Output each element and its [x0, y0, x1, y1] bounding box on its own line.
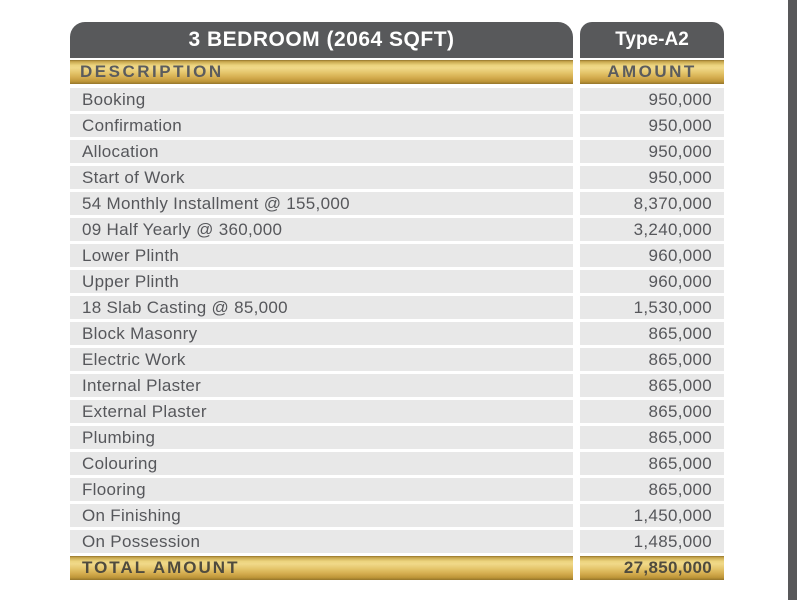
row-amount: 950,000: [580, 166, 724, 189]
column-gap: [573, 556, 580, 580]
row-description: Upper Plinth: [70, 270, 573, 293]
row-description: 54 Monthly Installment @ 155,000: [70, 192, 573, 215]
column-gap: [573, 192, 580, 215]
row-amount: 950,000: [580, 114, 724, 137]
table-row: Upper Plinth 960,000: [70, 270, 724, 293]
page-edge-strip: [788, 0, 797, 600]
row-description: Lower Plinth: [70, 244, 573, 267]
row-amount: 865,000: [580, 452, 724, 475]
column-gap: [573, 218, 580, 241]
row-description: 18 Slab Casting @ 85,000: [70, 296, 573, 319]
table-row: On Finishing 1,450,000: [70, 504, 724, 527]
total-amount: 27,850,000: [580, 556, 724, 580]
row-description: Internal Plaster: [70, 374, 573, 397]
column-gap: [573, 478, 580, 501]
row-amount: 865,000: [580, 374, 724, 397]
table-row: Flooring 865,000: [70, 478, 724, 501]
row-description: Block Masonry: [70, 322, 573, 345]
row-amount: 1,485,000: [580, 530, 724, 553]
row-amount: 960,000: [580, 270, 724, 293]
row-amount: 960,000: [580, 244, 724, 267]
table-row: 18 Slab Casting @ 85,000 1,530,000: [70, 296, 724, 319]
row-description: On Finishing: [70, 504, 573, 527]
row-amount: 1,530,000: [580, 296, 724, 319]
row-description: External Plaster: [70, 400, 573, 423]
row-description: Start of Work: [70, 166, 573, 189]
column-gap: [573, 374, 580, 397]
row-description: Booking: [70, 88, 573, 111]
row-description: Electric Work: [70, 348, 573, 371]
row-amount: 865,000: [580, 426, 724, 449]
column-gap: [573, 530, 580, 553]
row-description: Confirmation: [70, 114, 573, 137]
table-body: Booking 950,000 Confirmation 950,000 All…: [70, 88, 724, 553]
row-description: 09 Half Yearly @ 360,000: [70, 218, 573, 241]
column-gap: [573, 322, 580, 345]
total-row: TOTAL AMOUNT 27,850,000: [70, 556, 724, 580]
column-gap: [573, 114, 580, 137]
column-header-row: DESCRIPTION AMOUNT: [70, 60, 724, 84]
column-gap: [573, 88, 580, 111]
table-row: Start of Work 950,000: [70, 166, 724, 189]
table-row: Allocation 950,000: [70, 140, 724, 163]
table-row: Confirmation 950,000: [70, 114, 724, 137]
row-description: Allocation: [70, 140, 573, 163]
column-gap: [573, 22, 580, 58]
column-gap: [573, 296, 580, 319]
payment-plan-sheet: 3 BEDROOM (2064 SQFT) Type-A2 DESCRIPTIO…: [0, 0, 800, 600]
row-description: On Possession: [70, 530, 573, 553]
unit-type-badge: Type-A2: [580, 22, 724, 58]
column-gap: [573, 270, 580, 293]
table-header-row: 3 BEDROOM (2064 SQFT) Type-A2: [70, 22, 724, 58]
table-row: Colouring 865,000: [70, 452, 724, 475]
table-row: 09 Half Yearly @ 360,000 3,240,000: [70, 218, 724, 241]
row-amount: 865,000: [580, 400, 724, 423]
table-row: Booking 950,000: [70, 88, 724, 111]
column-gap: [573, 140, 580, 163]
row-amount: 950,000: [580, 140, 724, 163]
payment-plan-table: 3 BEDROOM (2064 SQFT) Type-A2 DESCRIPTIO…: [70, 22, 724, 580]
column-gap: [573, 244, 580, 267]
table-row: External Plaster 865,000: [70, 400, 724, 423]
column-gap: [573, 348, 580, 371]
row-amount: 865,000: [580, 348, 724, 371]
unit-title: 3 BEDROOM (2064 SQFT): [70, 22, 573, 58]
row-amount: 950,000: [580, 88, 724, 111]
total-label: TOTAL AMOUNT: [70, 556, 573, 580]
column-gap: [573, 400, 580, 423]
column-gap: [573, 166, 580, 189]
row-amount: 865,000: [580, 478, 724, 501]
table-row: On Possession 1,485,000: [70, 530, 724, 553]
description-column-header: DESCRIPTION: [70, 60, 573, 84]
row-amount: 1,450,000: [580, 504, 724, 527]
amount-column-header: AMOUNT: [580, 60, 724, 84]
column-gap: [573, 452, 580, 475]
table-row: 54 Monthly Installment @ 155,000 8,370,0…: [70, 192, 724, 215]
row-amount: 865,000: [580, 322, 724, 345]
table-row: Internal Plaster 865,000: [70, 374, 724, 397]
row-amount: 8,370,000: [580, 192, 724, 215]
row-description: Colouring: [70, 452, 573, 475]
table-row: Lower Plinth 960,000: [70, 244, 724, 267]
table-row: Block Masonry 865,000: [70, 322, 724, 345]
table-row: Plumbing 865,000: [70, 426, 724, 449]
row-description: Flooring: [70, 478, 573, 501]
table-row: Electric Work 865,000: [70, 348, 724, 371]
row-amount: 3,240,000: [580, 218, 724, 241]
row-description: Plumbing: [70, 426, 573, 449]
column-gap: [573, 426, 580, 449]
column-gap: [573, 60, 580, 84]
column-gap: [573, 504, 580, 527]
